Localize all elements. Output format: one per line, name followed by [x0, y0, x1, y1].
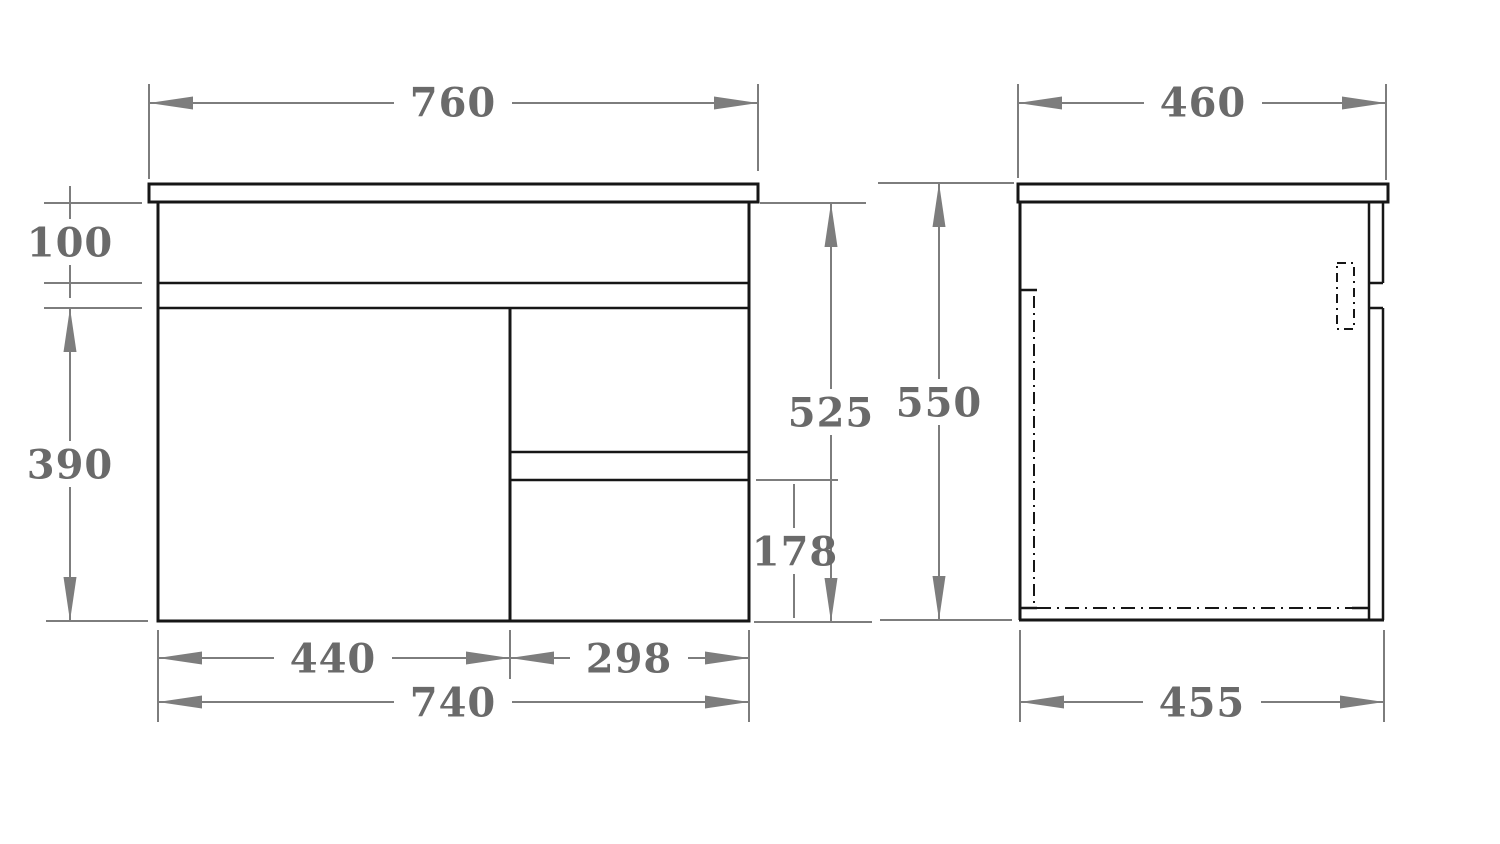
dimension-labels: 760 100 390 525 178 440 298 740 460 550 …: [27, 80, 1247, 727]
vanity-dimension-drawing: 760 100 390 525 178 440 298 740 460 550 …: [0, 0, 1500, 844]
dim-label-overall-height: 550: [896, 380, 983, 427]
dim-label-door-width: 440: [290, 636, 377, 683]
drawing-canvas: 760 100 390 525 178 440 298 740 460 550 …: [0, 0, 1500, 844]
side-door-front-profile: [1369, 308, 1383, 620]
side-countertop: [1018, 184, 1388, 202]
dim-label-drawer-height: 178: [752, 529, 839, 576]
front-cabinet-body: [158, 202, 749, 621]
dimensions: [28, 80, 1386, 725]
side-view: [1018, 184, 1388, 620]
dim-label-drawers-width: 298: [586, 636, 673, 683]
dim-label-cabinet-width: 740: [410, 680, 497, 727]
front-countertop: [149, 184, 758, 202]
side-apron-front-profile: [1369, 202, 1383, 283]
dim-label-top-width: 760: [410, 80, 497, 127]
side-hidden-fitting: [1337, 263, 1354, 329]
dim-label-apron-height: 100: [27, 220, 114, 267]
dim-label-cabinet-height: 525: [788, 390, 875, 437]
dim-label-top-depth: 460: [1160, 80, 1247, 127]
dim-label-door-height: 390: [27, 442, 114, 489]
front-view: [149, 184, 758, 621]
dim-label-cabinet-depth: 455: [1159, 680, 1246, 727]
